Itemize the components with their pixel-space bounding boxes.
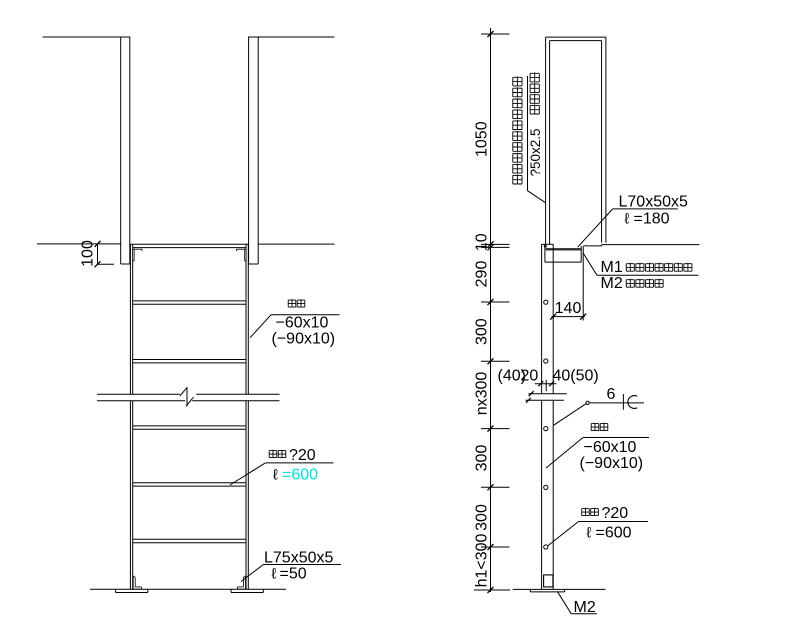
svg-text:L70x50x5: L70x50x5 <box>619 194 688 211</box>
svg-text:=600: =600 <box>596 525 632 542</box>
svg-text:100: 100 <box>80 240 97 267</box>
svg-text:ℓ: ℓ <box>587 525 592 542</box>
svg-text:M2: M2 <box>601 275 623 292</box>
svg-text:?20: ?20 <box>289 447 316 464</box>
svg-text:h1<300: h1<300 <box>474 533 491 587</box>
svg-text:(−90x10): (−90x10) <box>580 455 644 472</box>
svg-text:M1: M1 <box>601 259 623 276</box>
svg-text:−60x10: −60x10 <box>584 439 637 456</box>
svg-text:290: 290 <box>474 261 491 288</box>
svg-text:−60x10: −60x10 <box>276 315 329 332</box>
svg-text:nx300: nx300 <box>474 372 491 416</box>
svg-text:=600: =600 <box>282 467 318 484</box>
svg-text:20: 20 <box>521 368 539 385</box>
svg-text:10: 10 <box>474 233 491 251</box>
svg-text:300: 300 <box>474 318 491 345</box>
svg-text:300: 300 <box>474 445 491 472</box>
svg-text:ℓ: ℓ <box>625 211 630 228</box>
svg-text:1050: 1050 <box>474 121 491 157</box>
svg-text:300: 300 <box>474 504 491 531</box>
svg-text:M2: M2 <box>574 599 596 616</box>
svg-text:40(50): 40(50) <box>553 368 599 385</box>
svg-text:=50: =50 <box>280 566 307 583</box>
svg-text:L75x50x5: L75x50x5 <box>264 550 333 567</box>
svg-text:(−90x10): (−90x10) <box>272 331 336 348</box>
svg-text:6: 6 <box>607 386 616 403</box>
svg-text:=180: =180 <box>634 211 670 228</box>
svg-text:ℓ: ℓ <box>273 467 278 484</box>
svg-text:140: 140 <box>555 300 582 317</box>
svg-text:ℓ: ℓ <box>272 566 277 583</box>
svg-text:?20: ?20 <box>602 505 629 522</box>
svg-text:?50x2.5: ?50x2.5 <box>528 128 543 176</box>
